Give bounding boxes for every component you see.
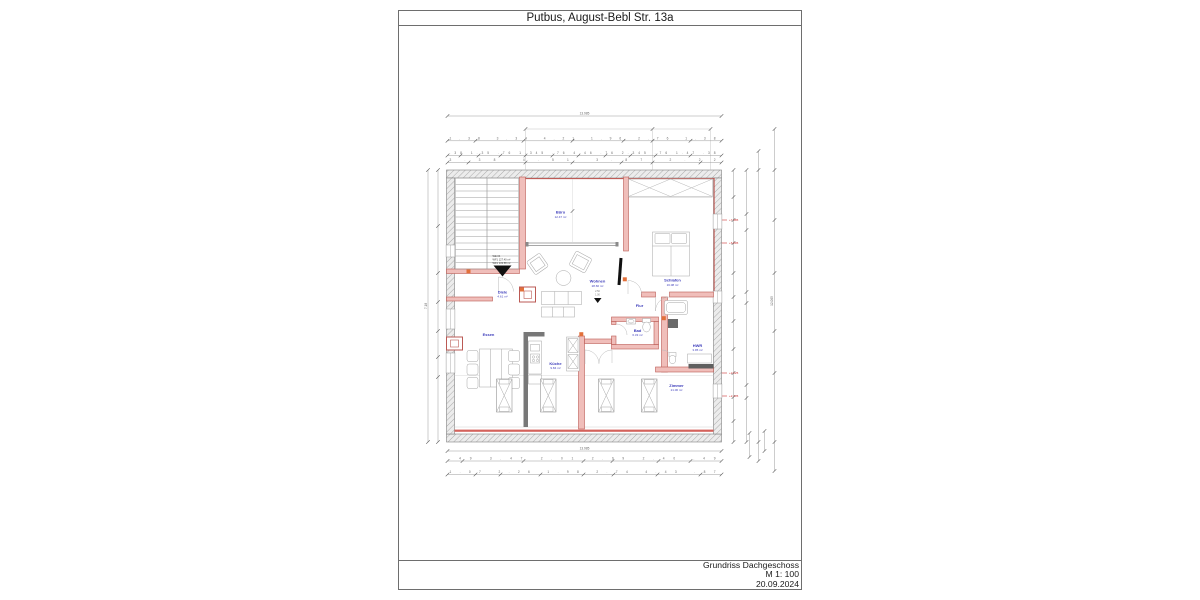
- room-label-wohnen: Wohnen: [590, 279, 606, 284]
- dim-right-overall: 12.065: [770, 296, 774, 306]
- room-buero: Büro 12.47 m²: [555, 179, 575, 242]
- dim-overall-top: 13.985: [580, 112, 590, 116]
- room-area-diele: 4.61 m²: [497, 295, 507, 299]
- dim-bottom-row1: .49 3.47 2.01 2.99 2.40 .49: [450, 457, 716, 461]
- room-area-zimmer: 21.06 m²: [671, 388, 683, 392]
- toilet: [669, 353, 676, 364]
- sheet-title: Putbus, August-Bebl Str. 13a: [399, 11, 801, 26]
- wall-junction: [467, 269, 471, 273]
- dimension-chain-left: 7.18: [424, 168, 440, 444]
- unit-label-line2: WF1 127.40 m²: [493, 257, 511, 261]
- toilet: [643, 319, 651, 333]
- window: [446, 245, 455, 257]
- window: [713, 291, 722, 303]
- round-table: [556, 271, 571, 286]
- screenshot-canvas: Putbus, August-Bebl Str. 13a 13.985: [0, 0, 1200, 600]
- room-schlafen: Schlafen 16.08 m²: [628, 179, 713, 311]
- room-area-buero: 12.47 m²: [555, 215, 567, 219]
- coffee-table: [542, 307, 575, 317]
- floor-edge-line: [455, 430, 714, 432]
- armchair: [526, 253, 548, 275]
- section-marker-bar: [619, 258, 621, 285]
- double-bed: [653, 232, 690, 276]
- wall-junction: [623, 277, 627, 281]
- window: [713, 384, 722, 398]
- room-label-essen: Essen: [483, 332, 495, 337]
- chimney: [520, 287, 536, 302]
- room-label-flur: Flur: [636, 303, 644, 308]
- room-label-buero: Büro: [556, 210, 566, 215]
- title-block: Grundriss Dachgeschoss M 1: 100 20.09.20…: [399, 560, 801, 589]
- counter: [688, 354, 712, 363]
- wall-junction: [662, 316, 666, 320]
- staircase: [456, 178, 519, 269]
- armchair: [569, 251, 592, 274]
- wall-junction: [579, 332, 583, 336]
- skylight: [599, 379, 615, 412]
- hwr-dark-strip: [689, 364, 714, 369]
- hall-doors: [585, 350, 612, 364]
- title-block-drawing-name: Grundriss Dachgeschoss: [399, 561, 799, 570]
- height-marker-triangle: [594, 298, 602, 303]
- drawing-area: 13.985 1.38 3.34 4.21 1.96 2.76 1.38: [399, 26, 801, 560]
- room-area-wohnen: 28.66 m²: [592, 284, 604, 288]
- room-area-schlafen: 16.08 m²: [667, 283, 679, 287]
- room-label-schlafen: Schlafen: [664, 278, 681, 283]
- bathtub: [665, 301, 688, 315]
- drawing-sheet-frame: Putbus, August-Bebl Str. 13a 13.985: [398, 10, 802, 590]
- sofa: [542, 292, 582, 305]
- dim-top-row2: .38 1.35 .76 1.345 .76 4.46 .76 2.345 .7…: [450, 151, 716, 155]
- unit-label-line3: WF1 133.58 m²: [493, 261, 511, 265]
- window: [713, 214, 722, 229]
- skylight: [642, 379, 658, 412]
- title-block-scale: M 1: 100: [399, 570, 799, 579]
- dim-top-row1: 1.38 3.34 4.21 1.96 2.76 1.38: [450, 136, 716, 140]
- elevation-label: +2.135: [729, 394, 739, 398]
- window: [446, 353, 455, 373]
- skylights: [497, 379, 658, 412]
- kitchen-wall-dark-cap: [524, 332, 545, 337]
- room-kueche: Küche 9.84 m²: [529, 337, 580, 384]
- kitchen-counter: [529, 341, 542, 384]
- dim-top-row3: 3.38 4.51 3.87 2.22: [450, 158, 716, 162]
- room-wohnen: Wohnen 28.66 m² 2.50 1.00: [526, 251, 606, 317]
- kitchen-wall-dark: [524, 332, 529, 427]
- skylight: [497, 379, 513, 412]
- title-block-date: 20.09.2024: [399, 580, 799, 589]
- skylight: [541, 379, 557, 412]
- unit-label-line1: WE 04: [493, 254, 501, 258]
- dimension-chain-right: 12.065: [732, 127, 777, 473]
- elevation-label: +6.895: [729, 241, 739, 245]
- unit-entry: WE 04 WF1 127.40 m² WF1 133.58 m² Diele …: [493, 254, 514, 299]
- room-area-hwr: 3.95 m²: [692, 348, 702, 352]
- room-area-bad: 6.33 m²: [632, 333, 642, 337]
- washer: [668, 319, 678, 328]
- elevation-label: +2.625: [729, 371, 739, 375]
- elevation-label: +7.385: [729, 218, 739, 222]
- chimney: [447, 337, 463, 350]
- sink: [627, 319, 636, 325]
- fridge-cabinet: [567, 337, 580, 371]
- room-area-kueche: 9.84 m²: [550, 366, 560, 370]
- floor-plan-svg: 13.985 1.38 3.34 4.21 1.96 2.76 1.38: [399, 26, 801, 560]
- window: [446, 309, 455, 329]
- dim-overall-bottom: 13.985: [580, 447, 590, 451]
- dim-bottom-row2: 1.07 2.26 1.98 2.74 4.43 .87: [450, 470, 716, 474]
- height-marker-value2: 1.00: [595, 293, 600, 296]
- dimension-chain-top: 13.985 1.38 3.34 4.21 1.96 2.76 1.38: [446, 112, 724, 170]
- elevation-marks: +7.385 +6.895 +2.625 +2.135: [720, 218, 739, 398]
- room-zimmer: Zimmer 21.06 m²: [669, 383, 684, 392]
- room-hwr: HWR 3.95 m²: [662, 343, 712, 364]
- dim-left-overall: 7.18: [424, 303, 428, 309]
